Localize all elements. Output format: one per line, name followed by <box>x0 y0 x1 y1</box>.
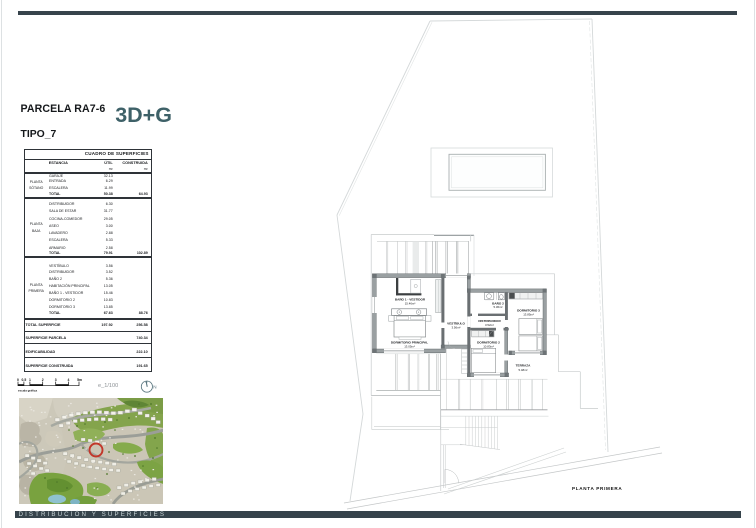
svg-text:0.5: 0.5 <box>22 378 27 382</box>
svg-text:5.36m²: 5.36m² <box>494 305 503 309</box>
svg-text:3: 3 <box>55 378 57 382</box>
svg-text:0: 0 <box>17 378 19 382</box>
svg-text:N: N <box>153 384 156 389</box>
svg-text:15.46m²: 15.46m² <box>405 302 416 306</box>
svg-text:2: 2 <box>42 378 44 382</box>
svg-text:13.85m²: 13.85m² <box>523 312 534 316</box>
svg-text:escala gráfica: escala gráfica <box>18 389 38 393</box>
svg-text:10.83m²: 10.83m² <box>483 344 494 348</box>
svg-text:3.52m²: 3.52m² <box>485 323 494 327</box>
svg-text:5.48m²: 5.48m² <box>519 368 528 372</box>
svg-text:5m: 5m <box>77 378 82 382</box>
svg-text:13.05m²: 13.05m² <box>404 344 415 348</box>
svg-text:4: 4 <box>68 378 70 382</box>
svg-text:3.56m²: 3.56m² <box>452 325 461 329</box>
svg-text:1: 1 <box>29 378 31 382</box>
